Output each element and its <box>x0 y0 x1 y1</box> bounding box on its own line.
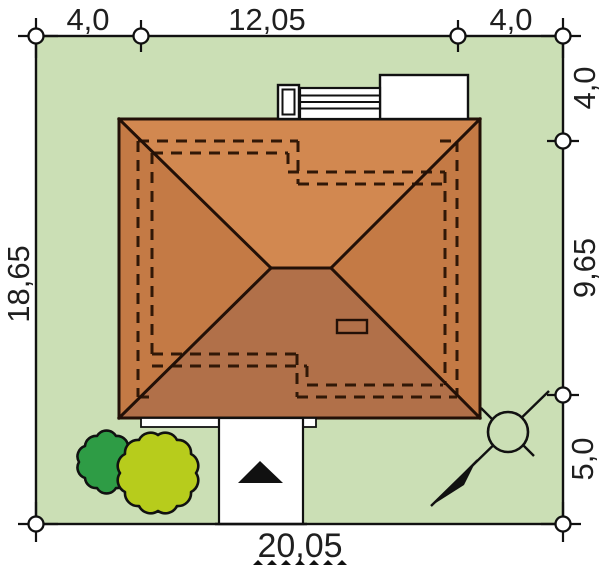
dimension-marker-circle <box>556 517 571 532</box>
bush-light <box>118 433 199 514</box>
site-plan-drawing: 4,0 12,05 4,0 4,0 9,65 5,0 18,65 20,05 <box>0 0 600 565</box>
roof-hatch-box <box>337 320 367 333</box>
dim-label-right-middle: 9,65 <box>567 238 600 298</box>
dim-label-top-right: 4,0 <box>489 2 532 37</box>
dimension-marker-circle <box>29 29 44 44</box>
dimension-marker-circle <box>29 517 44 532</box>
dimension-marker-circle <box>451 29 466 44</box>
white-block <box>380 75 468 119</box>
north-arrow-circle <box>488 412 528 452</box>
dim-label-top-left: 4,0 <box>66 2 109 37</box>
dim-label-right-lower: 5,0 <box>565 437 600 480</box>
dim-label-bottom: 20,05 <box>257 527 342 565</box>
dim-label-right-upper: 4,0 <box>567 66 600 109</box>
dimension-marker-circle <box>134 29 149 44</box>
site-plan-canvas: 4,0 12,05 4,0 4,0 9,65 5,0 18,65 20,05 <box>0 0 600 565</box>
dimension-marker-circle <box>556 134 571 149</box>
dim-label-left: 18,65 <box>1 245 36 323</box>
vent-block <box>300 88 380 119</box>
dimension-marker-circle <box>556 29 571 44</box>
dim-label-top-middle: 12,05 <box>228 2 306 37</box>
dimension-marker-circle <box>556 388 571 403</box>
